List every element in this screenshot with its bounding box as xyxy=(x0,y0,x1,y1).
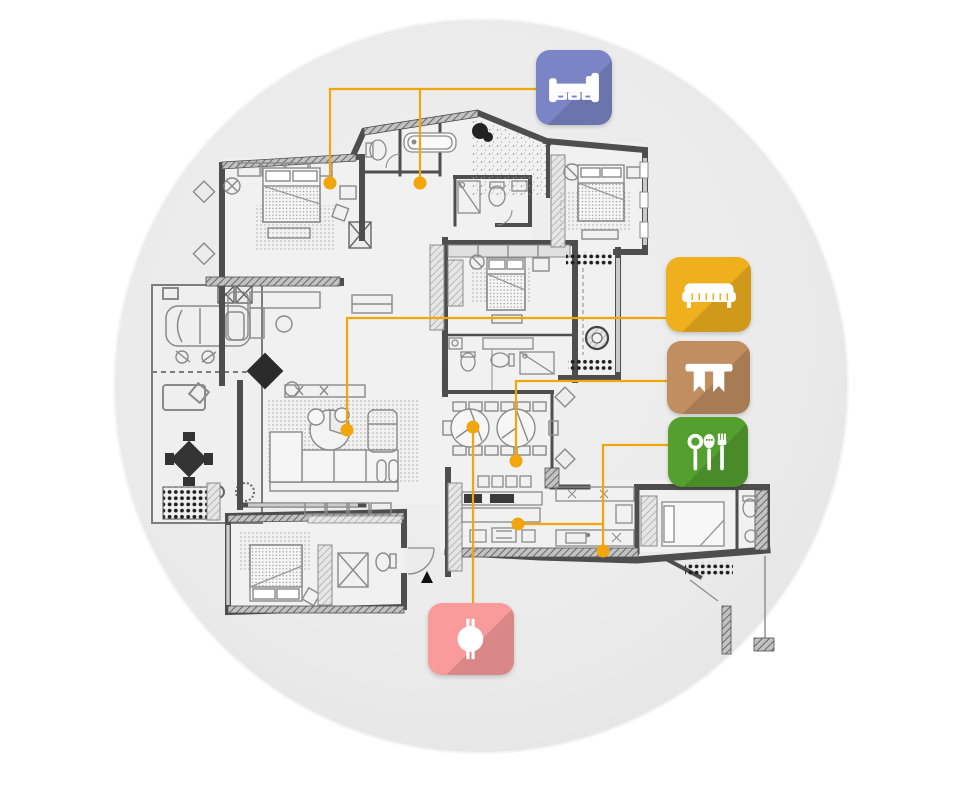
connector-dot-round-table xyxy=(467,421,480,434)
sofa-icon xyxy=(681,277,737,313)
entry-arrow xyxy=(421,571,433,583)
sofa-badge[interactable] xyxy=(666,257,751,332)
connector-dot-bedroom xyxy=(414,177,427,190)
bedroom-badge[interactable] xyxy=(536,50,612,125)
bed-single xyxy=(662,502,724,546)
cutlery-icon xyxy=(685,429,731,475)
table-icon xyxy=(683,358,735,398)
connector-dot-kitchen xyxy=(512,518,525,531)
bed-double xyxy=(263,168,320,222)
bed-double-3 xyxy=(487,258,525,310)
infographic-stage xyxy=(0,0,960,791)
round-table-badge[interactable] xyxy=(428,603,514,675)
bed-double-4 xyxy=(578,165,624,221)
connector-dot-bedroom xyxy=(324,177,337,190)
kitchen-badge[interactable] xyxy=(668,417,748,487)
table-badge[interactable] xyxy=(667,341,750,414)
connector-dot-table xyxy=(510,455,523,468)
round-table-icon xyxy=(444,617,498,661)
service-yard xyxy=(685,556,774,654)
room-living xyxy=(268,385,418,491)
entry xyxy=(408,548,434,583)
bed-icon xyxy=(548,69,600,107)
connector-dot-kitchen xyxy=(597,545,610,558)
connector-dot-sofa xyxy=(341,424,354,437)
bed-double-2 xyxy=(250,545,302,601)
